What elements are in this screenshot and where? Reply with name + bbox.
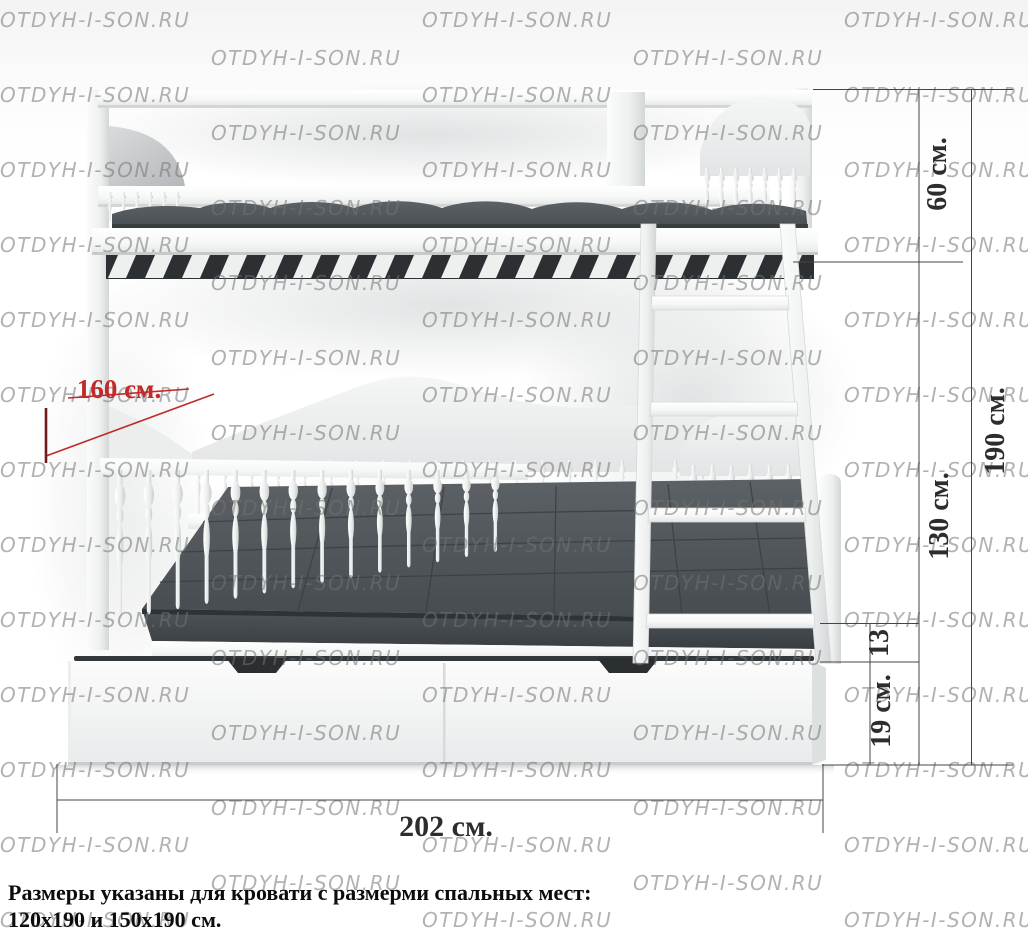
bed-length-label: 202 см. [394,812,498,842]
size-note-line1: Размеры указаны для кровати с размерми с… [8,879,591,906]
under-bunk-height-label: 130 см. [925,464,955,568]
upper-section-height-label: 60 см. [923,129,953,219]
dimension-lines [0,0,1028,949]
frame-height-label: 13 [865,625,895,661]
size-note-line2: 120x190 и 150x190 см. [8,906,591,933]
bunk-bed-dimension-diagram: OTDYH-I-SON.RUOTDYH-I-SON.RUOTDYH-I-SON.… [0,0,1028,949]
total-height-label: 190 см. [981,378,1011,484]
bed-width-label: 160 см. [64,374,174,404]
drawer-height-label: 19 см. [867,663,897,759]
size-note: Размеры указаны для кровати с размерми с… [8,879,591,933]
